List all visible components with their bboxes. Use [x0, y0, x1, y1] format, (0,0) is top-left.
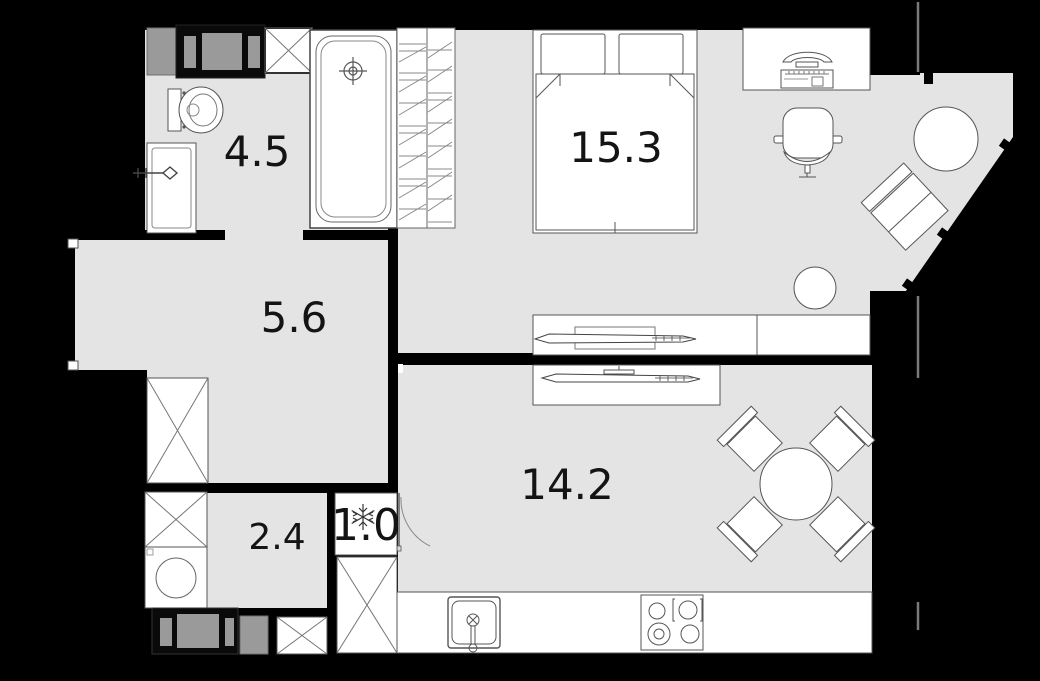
pantry-area-label: 1.0	[331, 500, 401, 551]
pillow	[619, 34, 683, 74]
bedroom-area-label: 15.3	[569, 123, 663, 172]
cooktop-stove	[641, 595, 703, 650]
vent-shaft-gray	[147, 28, 177, 75]
bathroom-door-opening	[225, 230, 303, 240]
round-pouf	[914, 107, 978, 171]
kitchen-area-label: 14.2	[520, 460, 614, 509]
desk	[743, 28, 870, 90]
laundry-closet	[145, 492, 207, 608]
pillow	[541, 34, 605, 74]
kitchen-counter	[397, 592, 872, 653]
closet-x-box	[145, 492, 207, 547]
kitchen-sink	[448, 597, 500, 652]
bathtub	[310, 30, 397, 228]
core-x-box	[277, 617, 327, 654]
pantry-x-box	[337, 557, 397, 653]
stool	[794, 267, 836, 309]
laundry-area-label: 2.4	[248, 517, 305, 558]
computer-icon	[781, 52, 833, 88]
vent-shaft-block	[176, 25, 265, 78]
vent-x-box	[265, 28, 312, 73]
washing-machine	[145, 547, 207, 608]
tv-console-bedroom	[533, 315, 870, 355]
hallway-wardrobe-x-box	[147, 378, 208, 483]
toilet	[168, 87, 223, 133]
floor-plan-canvas: 4.5 15.3 5.6 14.2 2.4 1.0	[0, 0, 1040, 681]
wardrobe-hanging-rail	[397, 28, 455, 228]
hallway-area-label: 5.6	[261, 293, 328, 342]
dining-table	[760, 448, 832, 520]
tv-console-kitchen	[533, 365, 720, 405]
vent-shaft-gray	[240, 616, 268, 654]
vent-shaft-block	[152, 608, 238, 654]
tv-icon	[535, 334, 696, 343]
bathroom-area-label: 4.5	[224, 127, 291, 176]
